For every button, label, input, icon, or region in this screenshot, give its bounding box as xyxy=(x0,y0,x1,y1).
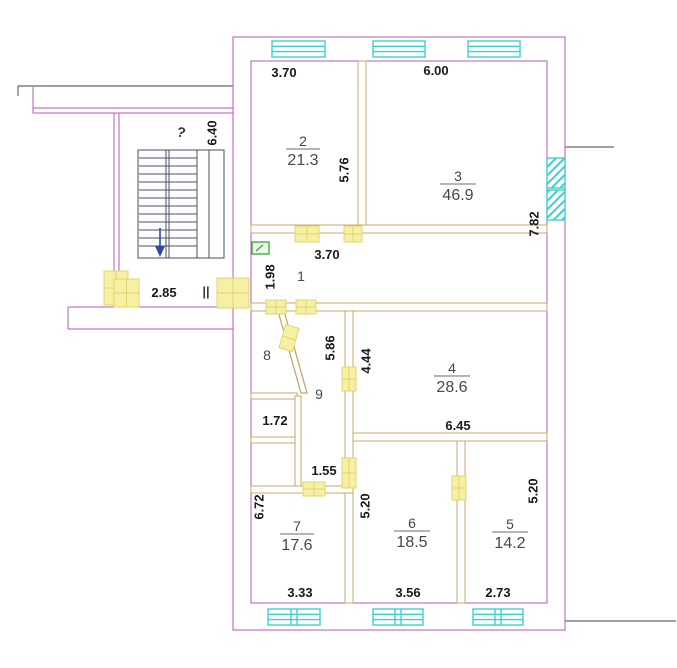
room-2-number: 2 xyxy=(299,133,307,149)
room-8-number: 8 xyxy=(263,347,271,363)
wall-room8-south xyxy=(251,393,297,399)
dim-room3-width: 6.00 xyxy=(423,63,448,78)
room-4-number: 4 xyxy=(448,360,456,376)
window-bottom-3 xyxy=(473,609,523,625)
door-corridor-to-room2 xyxy=(295,226,319,242)
stairwell-question-mark: ? xyxy=(175,123,187,141)
room-6-area: 18.5 xyxy=(396,534,427,551)
room-1-number: 1 xyxy=(297,268,305,284)
wall-left-right-split xyxy=(345,311,353,603)
room-3-area: 46.9 xyxy=(442,187,473,204)
wall-room5-room6 xyxy=(457,441,465,603)
door-hall9-to-room4 xyxy=(342,367,356,391)
dim-room4-left-height: 4.44 xyxy=(359,348,374,374)
door-annex-south xyxy=(114,279,139,307)
dim-corridor-width: 3.70 xyxy=(314,247,339,262)
annex-west-wall xyxy=(114,113,119,274)
dim-stairwell-height: 6.40 xyxy=(205,120,220,145)
dim-room5-width: 2.73 xyxy=(485,585,510,600)
room-3-number: 3 xyxy=(454,168,462,184)
wall-room4-south xyxy=(353,433,547,441)
window-bottom-1 xyxy=(268,609,320,625)
window-bottom-2 xyxy=(373,609,423,625)
window-top-1 xyxy=(272,41,325,57)
dim-annex-width: 2.85 xyxy=(151,285,176,300)
dim-room7-width: 3.33 xyxy=(287,585,312,600)
room-5-area: 14.2 xyxy=(494,535,525,552)
dim-room4-width: 6.45 xyxy=(445,418,470,433)
dim-room6-width: 3.56 xyxy=(395,585,420,600)
annex-top-wall xyxy=(33,108,233,113)
staircase xyxy=(138,150,224,258)
dim-niche-width: 1.72 xyxy=(262,413,287,428)
dim-corridor-left-height: 1.98 xyxy=(263,264,278,289)
room-7-number: 7 xyxy=(293,518,301,534)
wall-corridor-south xyxy=(251,303,547,311)
floor-plan-svg: 2 21.3 3 46.9 4 28.6 5 14.2 6 18.5 7 17.… xyxy=(0,0,677,668)
wall-closet-east xyxy=(295,396,301,488)
dim-room6-left-height: 5.20 xyxy=(358,493,373,518)
door-room6-to-room5 xyxy=(452,476,466,500)
dim-room2-height: 5.76 xyxy=(337,157,352,182)
wall-room2-room3 xyxy=(358,61,366,229)
door-corridor-to-hall9 xyxy=(296,300,316,314)
room-4-area: 28.6 xyxy=(436,379,467,396)
door-hall9-to-room7 xyxy=(303,482,325,496)
annex-south-wall xyxy=(68,307,233,329)
dim-room7-left-height: 6.72 xyxy=(252,494,267,519)
window-top-2 xyxy=(373,41,425,57)
panel-fixture-icon xyxy=(252,242,269,254)
room-2-area: 21.3 xyxy=(287,152,318,169)
room-9-number: 9 xyxy=(315,386,323,402)
dim-room2-width: 3.70 xyxy=(271,65,296,80)
wall-room7-north xyxy=(251,486,353,493)
room-7-area: 17.6 xyxy=(281,537,312,554)
door-corridor-to-room8 xyxy=(266,300,286,314)
window-top-3 xyxy=(468,41,520,57)
dim-closet-width: 1.55 xyxy=(311,463,336,478)
dim-room5-right-height: 5.20 xyxy=(526,478,541,503)
dim-room3-height: 7.82 xyxy=(527,211,542,236)
level-mark: || xyxy=(202,284,209,299)
room-6-number: 6 xyxy=(408,515,416,531)
wall-niche-north xyxy=(251,437,297,443)
fixtures xyxy=(252,242,269,254)
door-annex-to-corridor xyxy=(217,278,249,308)
room-5-number: 5 xyxy=(506,516,514,532)
door-corridor-to-room3 xyxy=(344,226,362,242)
door-hall9-to-room6 xyxy=(342,458,356,488)
dim-hall-height: 5.86 xyxy=(323,335,338,360)
floor-plan-page: 2 21.3 3 46.9 4 28.6 5 14.2 6 18.5 7 17.… xyxy=(0,0,677,668)
